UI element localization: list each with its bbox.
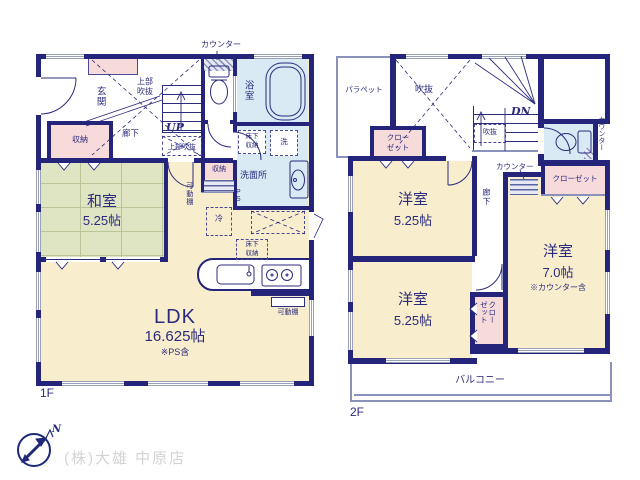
floor1-label: 1F (40, 387, 54, 400)
wall (233, 206, 314, 210)
upper-cabinet-box (251, 211, 305, 234)
closet3-label-col1: クロー (487, 301, 495, 324)
balcony-label: バルコニー (430, 375, 530, 386)
wall (370, 126, 426, 130)
entrance-label: 玄関 (94, 86, 105, 107)
wall (348, 256, 475, 262)
closet3-label: クローゼット (479, 301, 496, 324)
wall (47, 121, 113, 125)
washer-label: 洗 (270, 138, 298, 146)
counter-mid-label: カウンター (496, 163, 534, 171)
bath-label: 浴室 (242, 80, 253, 101)
underfloor-kitchen-label-line1: 床下 (236, 241, 268, 248)
storage-hall-label: 収納 (204, 166, 234, 174)
window (518, 348, 584, 353)
ldk-note-label: ※PS含 (125, 347, 225, 357)
fridge-label: 冷 (206, 215, 232, 224)
wall (36, 158, 168, 163)
upper-void2-label: 上部吹抜 (158, 144, 206, 152)
stair-bottom-line (472, 150, 538, 152)
window (36, 318, 41, 362)
underfloor-label-line2: 収納 (238, 142, 266, 149)
company-name: (株)大雄 中原店 (64, 447, 186, 468)
window (348, 176, 353, 212)
closet3-label-col2: ゼット (479, 301, 487, 324)
washitsu-label: 和室 (62, 194, 142, 211)
stairs-down-label: DN (511, 106, 531, 118)
stairs-up-label: UP (166, 122, 184, 134)
wall (472, 156, 477, 256)
wall (422, 126, 426, 160)
closet1-label-line1: クロー (374, 134, 422, 142)
wall (503, 172, 508, 348)
wall (251, 289, 314, 296)
window (36, 170, 41, 204)
bath-sliding-door (233, 76, 237, 112)
storage-hatch (204, 180, 234, 192)
underfloor-label-line1: 床下 (238, 133, 266, 140)
wall (605, 54, 610, 124)
window (482, 54, 526, 59)
window (36, 272, 41, 310)
void-small-label: 吹抜 (474, 129, 506, 137)
window (46, 54, 84, 59)
wall (164, 158, 168, 262)
room-west2 (353, 262, 472, 358)
wall (109, 121, 113, 163)
north-label: N (52, 424, 61, 435)
room1-size-label: 5.25帖 (373, 214, 453, 229)
entrance-door-opening (36, 77, 41, 115)
room1-door-opening (446, 156, 472, 161)
ps-label: PS (234, 189, 242, 203)
window (36, 212, 41, 252)
room3-size-label: 7.0帖 (518, 266, 598, 281)
room2-size-label: 5.25帖 (373, 314, 453, 329)
window (254, 54, 302, 59)
underfloor-kitchen-label-line2: 収納 (236, 250, 268, 257)
window (348, 270, 353, 302)
room1-label: 洋室 (373, 192, 453, 209)
washroom-door-opening (233, 132, 237, 160)
wall (194, 158, 234, 163)
room-west3 (508, 177, 605, 348)
counter-right-label: カウンター (597, 116, 605, 151)
ldk-size-label: 16.625帖 (115, 329, 235, 346)
floor2-label: 2F (350, 406, 364, 419)
window (605, 210, 610, 250)
kitchen-back-door (309, 212, 314, 240)
window (148, 381, 208, 386)
parapet-label: パラペット (338, 86, 390, 94)
hall-label-2f: 廊下 (481, 188, 490, 206)
window (406, 54, 448, 59)
washitsu-size-label: 5.25帖 (62, 214, 142, 229)
balcony-inner-line (354, 394, 610, 396)
window (62, 381, 124, 386)
washroom-label: 洗面所 (240, 170, 267, 180)
storage-left-label: 収納 (51, 136, 109, 145)
wall (470, 292, 508, 297)
counter-notch-toilet (584, 148, 593, 159)
wall (605, 160, 610, 354)
wall (470, 292, 475, 346)
counter-label-1f: カウンター (186, 41, 256, 50)
wall (370, 126, 374, 160)
ldk-label: LDK (125, 306, 225, 328)
wall-thin (541, 194, 605, 196)
hall-label-1f: 廊下 (122, 129, 139, 139)
wall (503, 172, 545, 177)
toilet2f-door-opening (538, 128, 544, 154)
wall (538, 160, 609, 166)
wall (390, 54, 396, 130)
movable-shelf-b-label: 可動棚 (263, 309, 313, 317)
sliding-door (106, 257, 160, 262)
wall (470, 344, 508, 349)
sliding-door (46, 257, 100, 262)
window (240, 381, 294, 386)
window (309, 300, 314, 336)
upper-void-label-line2: 吹抜 (130, 88, 160, 97)
room3-label: 洋室 (518, 244, 598, 261)
counter-hatch-2f (510, 179, 538, 195)
window (348, 312, 353, 350)
counter-hatch (204, 59, 233, 71)
closet2-label: クローゼット (543, 175, 607, 183)
window (605, 272, 610, 314)
corridor-to-washroom (204, 122, 234, 162)
movable-shelf-box (271, 297, 305, 307)
wall (233, 122, 312, 126)
shoe-cabinet (88, 58, 138, 75)
kitchen-counter (197, 258, 311, 291)
window (386, 358, 450, 363)
compass-north-icon (18, 430, 53, 466)
room2-label: 洋室 (373, 292, 453, 309)
door-arc-room2 (476, 264, 502, 290)
void-label-2f: 吹抜 (415, 84, 433, 94)
movable-shelf-v-label: 可動棚 (185, 182, 193, 206)
floorplan-canvas: カウンター 玄関 上部 吹抜 廊下 UP 上部吹抜 浴室 床下 収納 洗 洗面所… (0, 0, 640, 480)
closet1-label-line2: ゼット (374, 144, 422, 152)
room3-note-label: ※カウンター含 (508, 284, 608, 293)
toilet-door-opening (208, 120, 230, 124)
upper-void-label-line1: 上部 (130, 78, 160, 87)
backdoor-swing (314, 214, 323, 238)
